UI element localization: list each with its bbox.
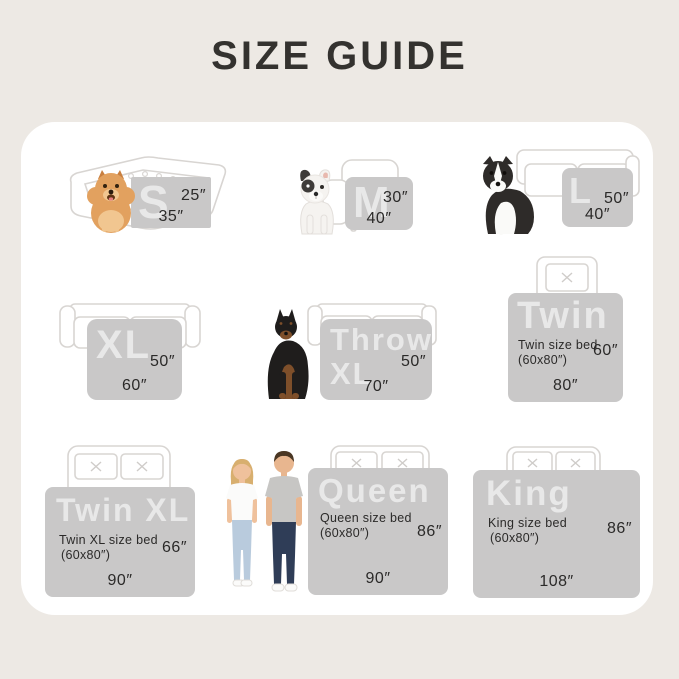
bed-dimensions-label: (60x80″) [490, 531, 539, 545]
size-letter: L [569, 173, 593, 209]
size-swatch-m: M 30″ 40″ [345, 177, 413, 230]
width-dimension: 40″ [345, 210, 413, 228]
width-dimension: 80″ [508, 377, 623, 395]
size-swatch-twin: Twin Twin size bed (60x80″) 60″ 80″ [508, 293, 623, 402]
height-dimension: 86″ [607, 520, 632, 538]
border-collie-icon [468, 155, 545, 235]
bed-type-label: Twin XL size bed [59, 533, 158, 547]
bed-type-label: Queen size bed [320, 511, 412, 525]
size-swatch-l: L 50″ 40″ [562, 168, 633, 227]
page-title: SIZE GUIDE [0, 34, 679, 79]
height-dimension: 25″ [181, 187, 206, 205]
height-dimension: 60″ [593, 342, 618, 360]
size-letter: Twin XL [56, 494, 190, 526]
width-dimension: 90″ [308, 570, 448, 588]
couple-icon [224, 450, 307, 593]
size-guide-card: S 25″ 35″ M 30″ 40″ [21, 122, 653, 615]
width-dimension: 60″ [87, 377, 182, 395]
size-swatch-queen: Queen Queen size bed (60x80″) 86″ 90″ [308, 468, 448, 595]
bed-type-label: King size bed [488, 516, 567, 530]
size-swatch-twin-xl: Twin XL Twin XL size bed (60x80″) 66″ 90… [45, 487, 195, 597]
bed-icon [67, 445, 171, 491]
size-letter: Twin [517, 297, 609, 335]
height-dimension: 86″ [417, 523, 442, 541]
height-dimension: 50″ [401, 353, 426, 371]
pomeranian-icon [73, 169, 147, 233]
bed-dimensions-label: (60x80″) [320, 526, 369, 540]
width-dimension: 90″ [45, 572, 195, 590]
height-dimension: 50″ [150, 353, 175, 371]
size-letter: XL [96, 325, 151, 365]
bed-type-label: Twin size bed [518, 338, 598, 352]
bed-dimensions-label: (60x80″) [518, 353, 567, 367]
size-swatch-xl: XL 50″ 60″ [87, 319, 182, 400]
french-bulldog-icon [288, 168, 346, 235]
size-letter: Queen [318, 474, 431, 507]
size-swatch-king: King King size bed (60x80″) 86″ 108″ [473, 470, 640, 598]
height-dimension: 66″ [162, 539, 187, 557]
height-dimension: 30″ [383, 189, 408, 207]
size-letter: King [486, 476, 572, 511]
width-dimension: 40″ [562, 206, 633, 224]
bed-dimensions-label: (60x80″) [61, 548, 110, 562]
width-dimension: 70″ [320, 378, 432, 396]
width-dimension: 108″ [473, 573, 640, 591]
size-swatch-throw-xl: Throw XL 50″ 70″ [320, 319, 432, 400]
size-guide-page: SIZE GUIDE S 25″ 35″ [0, 0, 679, 679]
doberman-icon [255, 308, 323, 400]
